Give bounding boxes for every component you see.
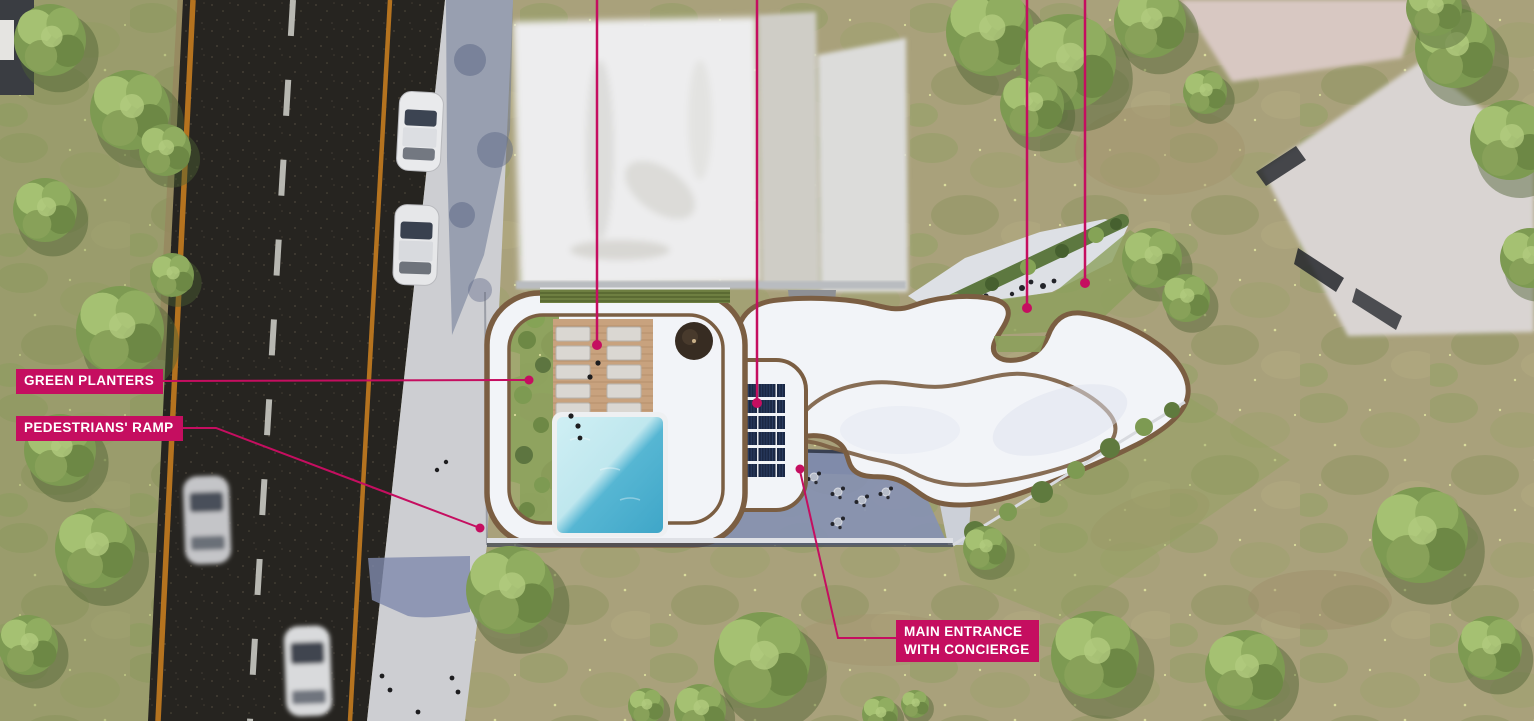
parked-car	[396, 91, 444, 172]
annotation-text-line1: MAIN ENTRANCE	[904, 623, 1030, 641]
annotation-text-line2: WITH CONCIERGE	[904, 641, 1030, 659]
green-planters-hedge-band	[540, 288, 730, 304]
annotation-label-green-planters: GREEN PLANTERS	[16, 369, 163, 394]
site-plan-rendering: GREEN PLANTERS PEDESTRIANS' RAMP MAIN EN…	[0, 0, 1534, 721]
swimming-pool	[552, 412, 668, 537]
annotation-text: PEDESTRIANS' RAMP	[24, 420, 174, 435]
annotation-label-main-entrance: MAIN ENTRANCE WITH CONCIERGE	[896, 620, 1039, 662]
annotation-text: GREEN PLANTERS	[24, 373, 154, 388]
moving-car	[283, 625, 332, 717]
annotation-label-pedestrians-ramp: PEDESTRIANS' RAMP	[16, 416, 183, 441]
moving-car	[183, 475, 232, 565]
courtyard	[487, 288, 745, 546]
pool-umbrella	[675, 322, 713, 360]
aerial-rendering	[0, 0, 1534, 721]
parked-car	[393, 204, 440, 285]
